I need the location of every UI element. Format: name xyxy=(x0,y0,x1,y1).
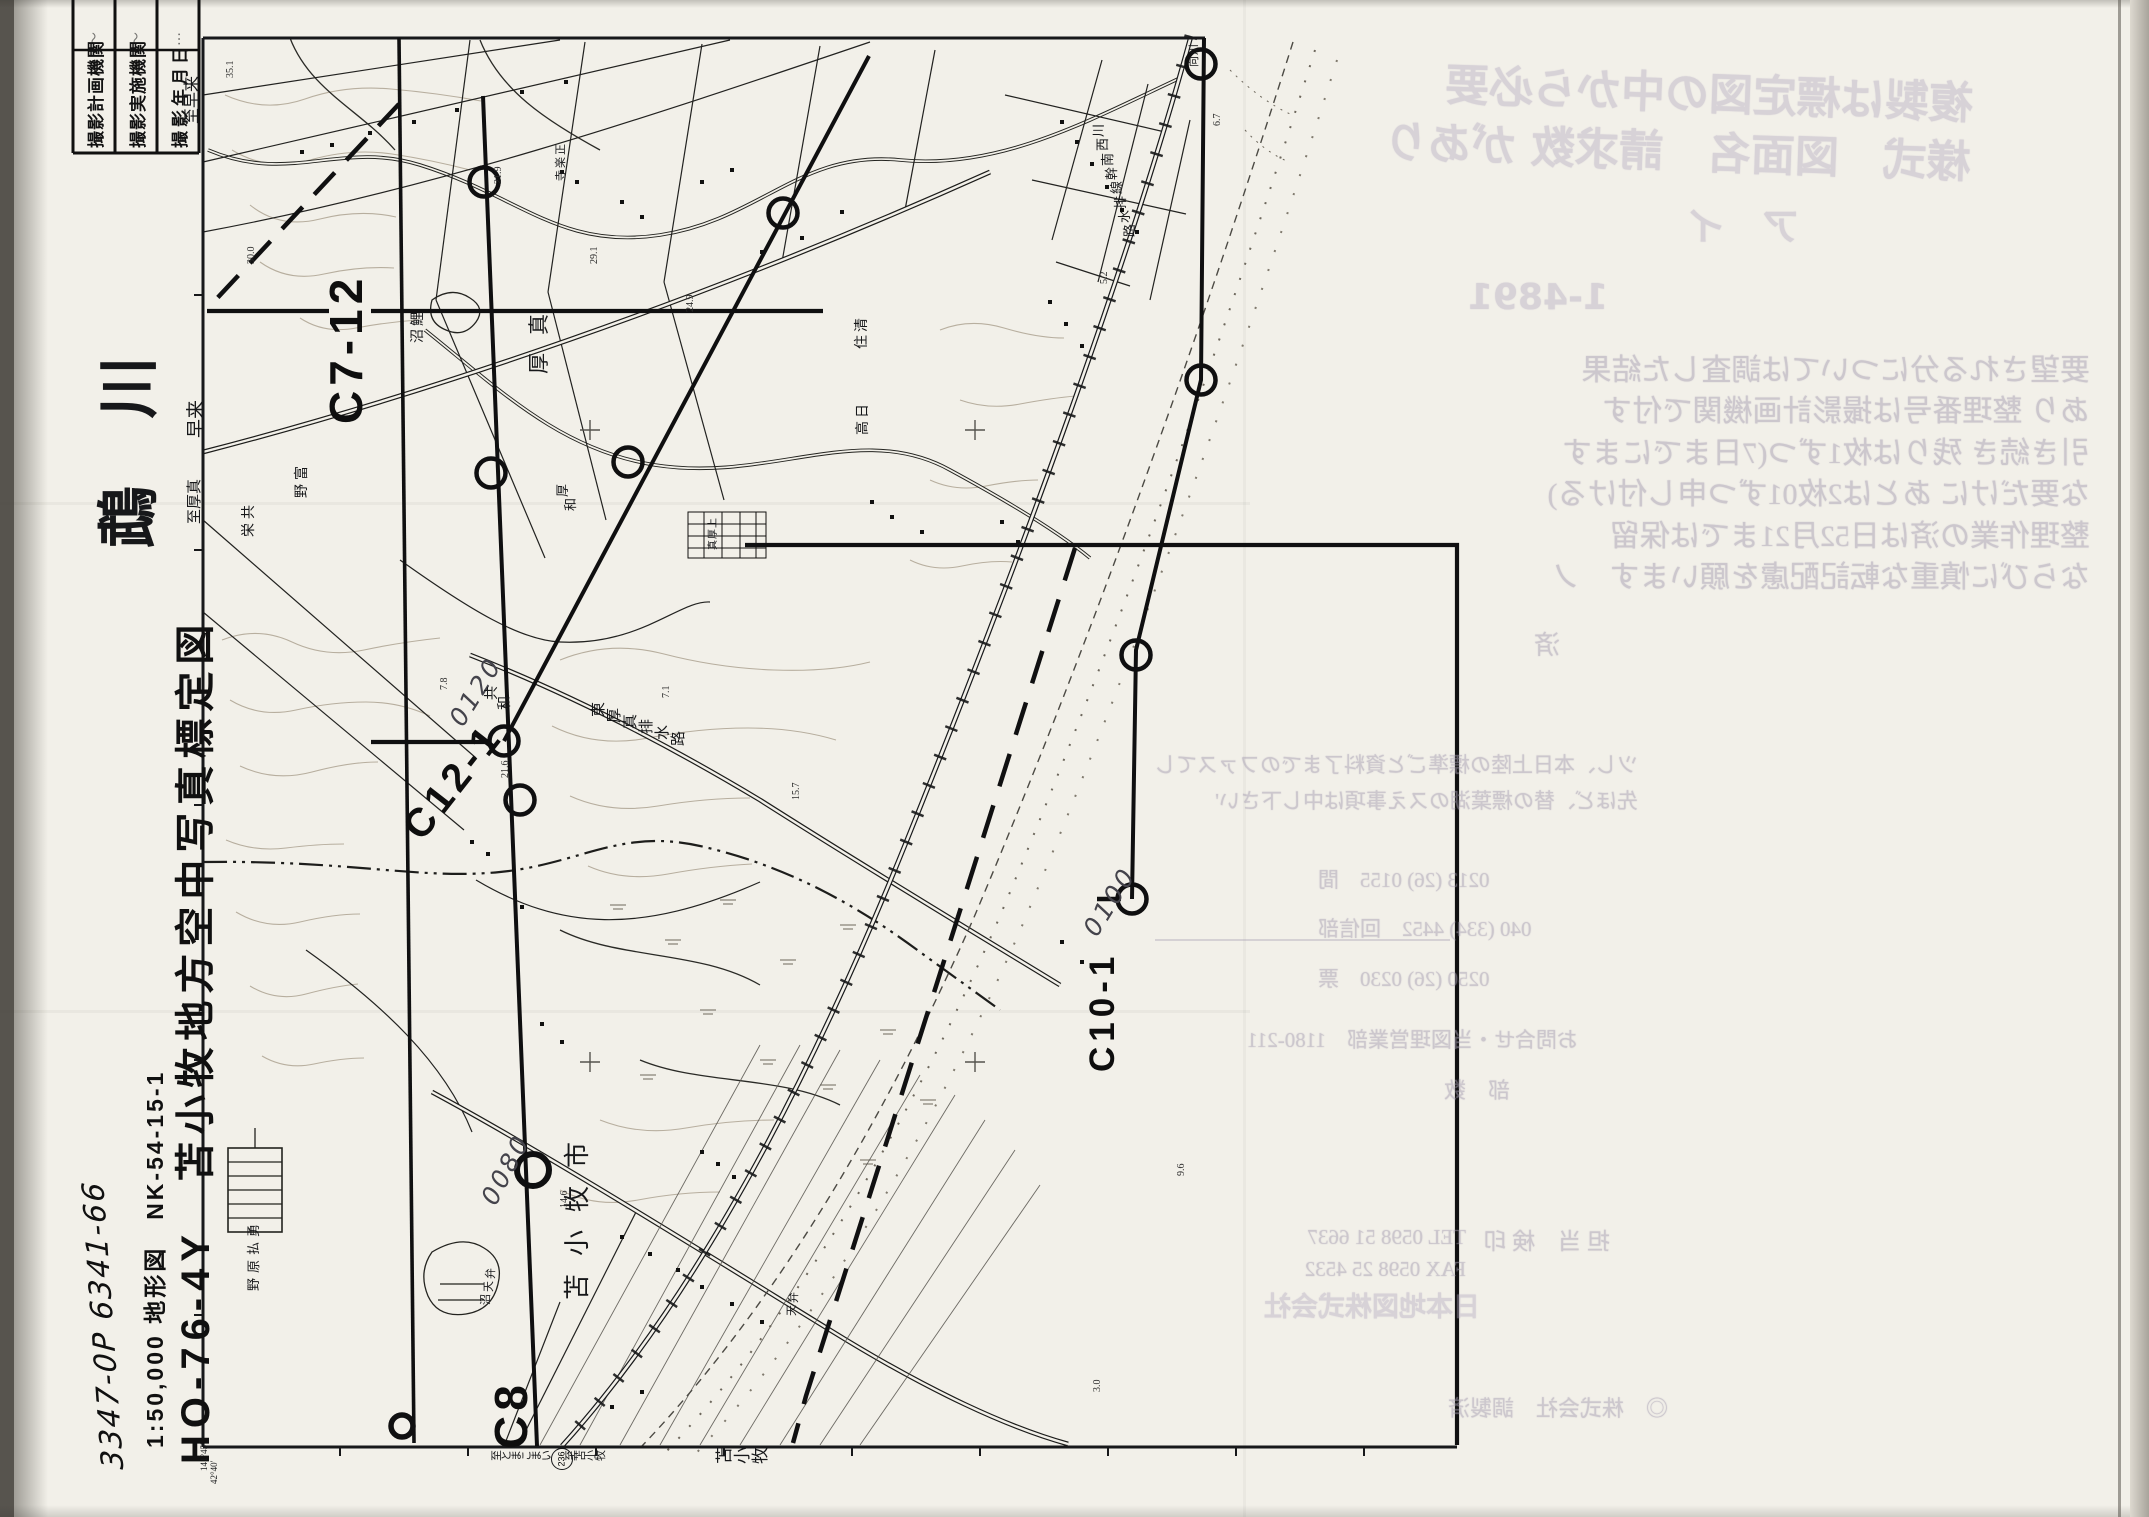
roads xyxy=(203,40,1190,1446)
bleed-stamp: ◎ 株式会社 調製済 xyxy=(1428,1394,1668,1424)
bleed-busuu: 部 数 xyxy=(1380,1076,1510,1106)
bleed-busuu-line: 部 数 xyxy=(1380,1076,1510,1106)
bleed-smallpair: ツし、本日上陸の標準ごと資料了までのファスてし先ほど、替の標葉湖のスえ事項は中し… xyxy=(1148,748,1638,819)
bleed-phone-list-line: 040 (334) 4452 回信部 xyxy=(1318,905,1553,954)
bleed-contact-line: お問合せ・当図理営業部 1180-211 xyxy=(1268,1026,1578,1054)
bleed-sumi-line: 済 xyxy=(1480,628,1560,663)
header-row-value: … xyxy=(168,32,184,46)
label-hayakita: 早来 xyxy=(187,400,206,438)
header-row-label: 撮影計画機関 xyxy=(82,40,107,148)
bleed-company: 日本地図株式会社 xyxy=(1260,1290,1480,1326)
label-higashi-atsuma-drainage-char: 水 xyxy=(656,725,671,740)
spot-height: 14.6 xyxy=(560,1191,570,1209)
graticule-crosses xyxy=(580,420,985,1072)
spot-height: 24.9 xyxy=(686,295,696,313)
bleed-tel-line: FAX 0598 25 4532 xyxy=(1256,1254,1466,1286)
label-koinuma-char: 鯉 xyxy=(412,312,426,326)
label-to-hayakita: 至早来 xyxy=(185,76,201,124)
contour-lines xyxy=(222,88,1076,1202)
label-benten-char: 弁 xyxy=(789,1292,800,1303)
label-atsuma-town: 厚真 xyxy=(529,296,550,374)
label-kawanishi-trunk-drainage-char: 線 xyxy=(1110,181,1123,194)
label-shorakuji-char: 寺 xyxy=(556,170,567,181)
label-kawanishi-trunk-drainage-char: 水 xyxy=(1118,210,1131,223)
bleed-phone-list-line: 0250 (26) 0230 票 xyxy=(1318,955,1553,1004)
route-shield-236-number: 236 xyxy=(557,1451,567,1466)
border-label-to-tomakomai-char: 牧 xyxy=(596,1450,607,1461)
label-kami-atsuma-char: 厚 xyxy=(709,529,719,539)
spot-height: 35.1 xyxy=(226,61,236,79)
label-atsuwa-char: 和 xyxy=(564,498,577,511)
rivers xyxy=(208,38,1180,1105)
scanned-map-sheet: 撮影計画機関 撮影実施機関 撮影年月日 〜 〜 … 3347-0P 6341-6… xyxy=(0,0,2149,1517)
course-label-c7-12: C7-12 xyxy=(323,274,369,424)
coverage-dashed-right xyxy=(793,548,1075,1443)
border-label-tomakomai-char: 牧 xyxy=(752,1447,769,1464)
label-benten-numa-char: 弁 xyxy=(486,1268,497,1279)
bleed-paragraph-line: 引き続き 残りは枚1ずつ(7日までにます xyxy=(1230,433,2090,474)
label-kawanishi-trunk-drainage-char: 路 xyxy=(1123,224,1136,237)
route-shield-236: 236 xyxy=(551,1448,573,1470)
label-kami-atsuma-char: 真 xyxy=(709,540,719,550)
municipal-boundary xyxy=(203,841,1000,1010)
spot-height: 21.6 xyxy=(501,761,511,779)
label-higashi-atsuma-drainage-char: 排 xyxy=(640,719,655,734)
label-koinuma-char: 沼 xyxy=(412,329,426,343)
town-cluster-atsuma xyxy=(688,512,766,558)
spot-height: 3.0 xyxy=(1093,1380,1103,1393)
map-linework xyxy=(0,0,2149,1517)
sheet-main-title: HO-76-4Y 苫小牧地方空中写真標定図 xyxy=(163,618,221,1464)
bleed-company-line: 日本地図株式会社 xyxy=(1260,1290,1480,1326)
bleed-heading-1: 複製は標定図の中から必要様式 図面名 請求数 があり xyxy=(1250,49,1974,193)
bleed-contact: お問合せ・当図理営業部 1180-211 xyxy=(1268,1026,1578,1054)
label-kami-atsuma-char: 上 xyxy=(709,518,719,528)
label-hidaka-char: 高 xyxy=(857,421,871,435)
bleed-paragraph-line: 要望される分については調査した結果 xyxy=(1230,350,2090,391)
coordinate-141-45: 141°45′ xyxy=(200,1443,209,1471)
label-atsuwa-char: 厚 xyxy=(556,484,569,497)
spot-height: 9.6 xyxy=(1177,1164,1187,1177)
spot-height: 30.0 xyxy=(247,247,257,265)
spot-height: 29.1 xyxy=(590,247,600,265)
label-tomakomai-city: 苫小牧市 xyxy=(565,1124,591,1300)
bleed-smallpair-line: ツし、本日上陸の標準ごと資料了までのファスてし xyxy=(1148,748,1638,784)
label-shorakuji-char: 楽 xyxy=(556,157,567,168)
header-row-value: 〜 xyxy=(84,32,104,46)
label-higashi-atsuma-drainage-char: 路 xyxy=(672,731,687,746)
bleed-number: 1-4891 xyxy=(1368,274,1608,323)
bleed-paragraph-line: あり 整理番号は撮影計画機関で付す xyxy=(1230,391,2090,432)
label-to-atsuma: 至厚真 xyxy=(188,479,203,524)
label-kiyozumi-char: 住 xyxy=(856,335,870,349)
bleed-number-line: 1-4891 xyxy=(1368,274,1608,323)
label-tomino-char: 富 xyxy=(296,466,310,480)
label-higashi-atsuma-drainage-char: 東 xyxy=(592,702,607,717)
header-row-value: 〜 xyxy=(126,32,146,46)
label-tomino-char: 野 xyxy=(296,484,310,498)
label-benten-char: 天 xyxy=(787,1305,798,1316)
label-kawanishi-trunk-drainage-char: 川 xyxy=(1092,124,1105,137)
course-label-c10-1: C10-1 xyxy=(1085,952,1120,1072)
spot-height: 7.1 xyxy=(662,686,672,699)
building-dots xyxy=(300,80,1139,1409)
photo-center-circle xyxy=(769,199,798,228)
border-label-tomakomai-char: 苫 xyxy=(716,1447,733,1464)
bleed-phone-list-line: 0213 (26) 0155 間 xyxy=(1318,856,1553,905)
label-yufutsu-plain-char: 原 xyxy=(247,1260,260,1273)
spot-height: 5.2 xyxy=(1100,272,1110,285)
bleed-phone-list: 0213 (26) 0155 間040 (334) 4452 回信部0250 (… xyxy=(1318,856,1553,1004)
border-label-tomakomai-char: 小 xyxy=(734,1447,751,1464)
label-kiyozumi-char: 清 xyxy=(856,318,870,332)
header-row-label: 撮影実施機関 xyxy=(124,40,149,148)
bleed-stamp-line: ◎ 株式会社 調製済 xyxy=(1428,1394,1668,1424)
course-label-c8: C8 xyxy=(488,1380,534,1449)
label-benten-numa-char: 天 xyxy=(484,1281,495,1292)
label-higashi-atsuma-drainage-char: 真 xyxy=(624,714,639,729)
label-benten-numa-char: 沼 xyxy=(481,1294,492,1305)
course-c12-1 xyxy=(371,56,869,756)
label-yufutsu-plain-char: 野 xyxy=(247,1278,260,1291)
bleed-paragraph: 要望される分については調査した結果あり 整理番号は撮影計画機関で付す引き続き 残… xyxy=(1230,350,2090,598)
title-mukawa-river: 鵡 川 xyxy=(99,330,161,548)
spot-height: 6.7 xyxy=(1213,114,1223,127)
spot-height: 7.8 xyxy=(440,678,450,691)
bleed-paragraph-line: ならびに慎重な転記配慮を願います ノ xyxy=(1230,557,2090,598)
bleed-tanto-line: 担 当 検 印 xyxy=(1430,1226,1610,1257)
photo-center-circle xyxy=(477,459,506,488)
label-kawanishi-trunk-drainage-char: 排 xyxy=(1114,196,1127,209)
label-kyoei-char: 栄 xyxy=(243,523,257,537)
bleed-sumi: 済 xyxy=(1480,628,1560,663)
label-yufutsu-plain-char: 勇 xyxy=(247,1224,260,1237)
bleed-paragraph-line: 整理作業の済は日52月21までは保留 xyxy=(1230,516,2090,557)
label-kawanishi-trunk-drainage-char: 南 xyxy=(1101,153,1114,166)
label-shorakuji-char: 正 xyxy=(556,144,567,155)
label-kyoei-char: 共 xyxy=(243,505,257,519)
label-kawanishi-trunk-drainage-char: 幹 xyxy=(1105,167,1118,180)
spot-height: 21.9 xyxy=(494,167,504,185)
label-kawamukai-char: 川 xyxy=(1189,44,1200,55)
coordinate-42-40: 42°40′ xyxy=(210,1460,219,1484)
marsh-symbols xyxy=(610,900,936,1164)
bleed-heading-2: ア イ xyxy=(1540,202,1800,253)
bleed-smallpair-line: 先ほど、替の標葉湖のスえ事項は中し下さい' xyxy=(1148,784,1638,820)
spot-height: 15.7 xyxy=(792,783,802,801)
label-higashi-atsuma-drainage-char: 厚 xyxy=(608,708,623,723)
photo-center-circle xyxy=(391,1415,413,1437)
label-kawanishi-trunk-drainage-char: 西 xyxy=(1096,138,1109,151)
label-kawamukai-char: 向 xyxy=(1189,56,1200,67)
bleed-heading-2-line: ア イ xyxy=(1540,202,1800,253)
label-kyowa-char: 和 xyxy=(499,696,513,710)
bleed-tanto: 担 当 検 印 xyxy=(1430,1226,1610,1257)
bleed-paragraph-line: な要だけに あとは2枚01ずつ申し付ける) xyxy=(1230,474,2090,515)
label-hidaka-char: 日 xyxy=(857,404,871,418)
label-yufutsu-plain-char: 払 xyxy=(247,1242,260,1255)
